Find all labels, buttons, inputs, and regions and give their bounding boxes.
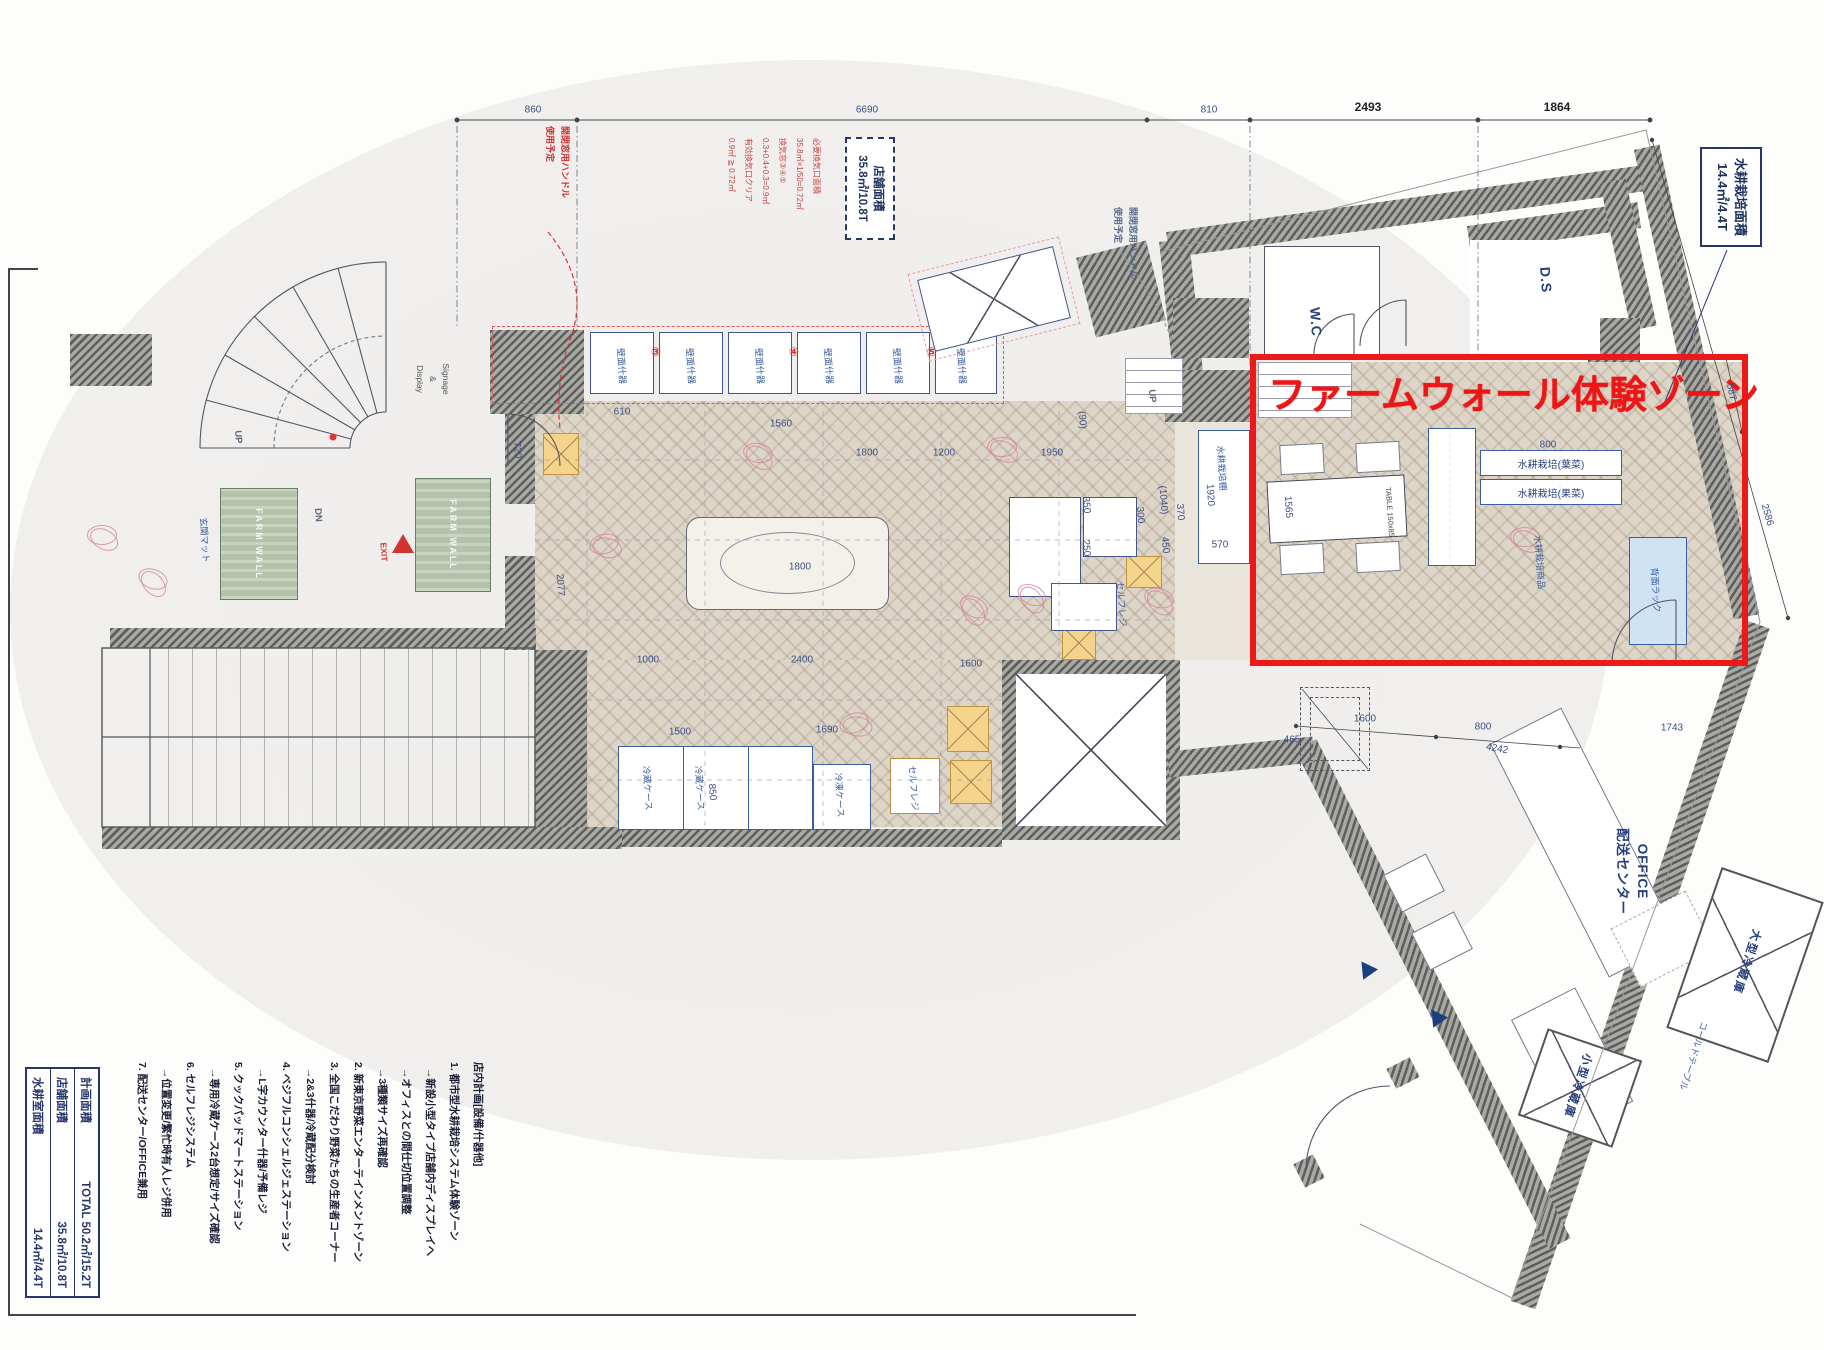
dimension-label: 465 — [1284, 735, 1301, 746]
text-line: 必要換気口面積 — [808, 138, 825, 238]
text-line: 有効換気口クリア — [740, 138, 757, 238]
text-line: →オフィスとの間仕切位置調整 — [394, 1062, 418, 1300]
text-line: 6. セルフレジシステム — [178, 1062, 202, 1300]
text-line: →3種類サイズ再確認 — [370, 1062, 394, 1300]
plan-label: 小型冷蔵庫 — [1560, 1051, 1596, 1120]
text-line: 配送センター — [1612, 808, 1632, 935]
dimension-label: 587 — [1724, 383, 1738, 402]
dimension-label: 810 — [1201, 105, 1218, 116]
hydro-area-line2: 14.4㎡/4.4T — [1713, 163, 1731, 231]
plan-label: 壁面什器 — [614, 348, 629, 385]
hydro-area-box: 水耕栽培面積 14.4㎡/4.4T — [1700, 147, 1762, 247]
dimension-label: 720 — [511, 441, 523, 458]
area-table-value: TOTAL 50.2㎡/15.2T — [79, 1181, 95, 1288]
vent-calc-stamp: 必要換気口面積35.8㎡×1/50=0.72㎡換気窓③④⑤0.3+0.4+0.3… — [721, 138, 825, 238]
text-line: 0.3+0.4+0.3=0.9㎡ — [757, 138, 774, 238]
dimension-label: 1864 — [1544, 100, 1571, 114]
plan-label: TABLE 150x85 — [1384, 487, 1396, 537]
area-table-label: 水耕室面積 — [31, 1077, 47, 1135]
text-line: 2. 新東京野菜エンターテインメントゾーン — [346, 1062, 370, 1300]
plan-label: 背面ラック — [1648, 567, 1664, 613]
area-table-value: 14.4㎡/4.4T — [31, 1228, 47, 1288]
dimension-label: 1950 — [1041, 448, 1063, 459]
dimension-label: 850 — [706, 783, 718, 800]
plan-label: 冷蔵ケース — [692, 765, 708, 810]
plan-label: D.S — [1537, 266, 1555, 293]
text-line: →L字カウンター什器/予備レジ — [250, 1062, 274, 1300]
dimension-label: 570 — [1212, 540, 1229, 551]
dimension-label: 1200 — [933, 448, 955, 459]
plan-label: EXIT — [378, 542, 389, 562]
text-line: 開閉窓用ハンドル — [1125, 207, 1140, 302]
text-line: 開閉窓用ハンドル — [557, 126, 572, 226]
dimension-label: 1920 — [1204, 484, 1217, 507]
dimension-label: 1560 — [770, 419, 792, 430]
plan-label: コールドテーブル — [1677, 1020, 1711, 1092]
text-line: 換気窓③④⑤ — [774, 138, 791, 238]
plan-label: 壁面什器 — [890, 348, 905, 385]
text-line: 店内計画[設備/什器他] — [466, 1062, 490, 1300]
signage-display-label: Signage&Display — [408, 356, 452, 402]
plan-label: セルフレジ — [1114, 581, 1130, 627]
dimension-label: 300 — [1134, 506, 1146, 523]
floor-plan-sheet: FARM WALL FARM WALL 水耕栽培(葉菜) 水耕栽培(果菜) — [0, 0, 1824, 1350]
handle-note-red: 開閉窓用ハンドル使用予定 — [538, 126, 572, 226]
dimension-label: (1040) — [1157, 485, 1170, 515]
dimension-label: 1600 — [960, 659, 982, 670]
plan-label: ⑤ — [927, 345, 937, 359]
office-delivery-label: OFFICE配送センター — [1608, 808, 1652, 935]
dimension-label: 250 — [1080, 539, 1092, 556]
dimension-label: 2586 — [1759, 503, 1776, 527]
area-table-value: 35.8㎡/10.8T — [55, 1222, 71, 1288]
plan-label: セルフレジ — [906, 765, 922, 811]
dimension-label: 2493 — [1355, 100, 1382, 114]
dimension-label: 610 — [614, 407, 631, 418]
plan-label: 冷凍ケース — [832, 772, 848, 817]
dimension-label: 800 — [1475, 722, 1492, 733]
text-line: →新設小型タイプ店舗内ディスプレイへ — [418, 1062, 442, 1300]
store-area-line1: 店舗面積 — [870, 166, 886, 212]
plan-label: DN — [312, 508, 324, 522]
area-table-row: 水耕室面積14.4㎡/4.4T — [27, 1069, 51, 1296]
plan-label: 壁面什器 — [821, 348, 836, 385]
text-line: 5. クックパッドマートステーション — [226, 1062, 250, 1300]
text-line: 4. ベジフルコンシェルジェステーション — [274, 1062, 298, 1300]
dimension-label: 350 — [1080, 496, 1092, 513]
text-line: OFFICE — [1632, 808, 1652, 935]
text-line: 3. 全国こだわり野菜たちの生産者コーナー — [322, 1062, 346, 1300]
dimension-label: 860 — [525, 105, 542, 116]
dimension-label: 800 — [1540, 440, 1557, 451]
dimension-label: 2077 — [554, 574, 567, 597]
text-line: 7. 配送センター/OFFICE兼用 — [130, 1062, 154, 1300]
dimension-label: 370 — [1174, 503, 1186, 520]
text-line: 使用予定 — [1110, 207, 1125, 302]
text-line: Signage — [439, 356, 452, 402]
plan-label: 壁面什器 — [752, 348, 767, 385]
dimension-label: 1500 — [669, 727, 691, 738]
plan-label: 大型冷蔵庫 — [1729, 927, 1765, 996]
plan-label: W.C — [1307, 307, 1325, 337]
plan-label: ④ — [789, 345, 799, 359]
plan-label: 壁面什器 — [954, 348, 969, 385]
plan-label: 水耕栽培商品 — [1532, 535, 1549, 590]
area-table-row: 店舗面積35.8㎡/10.8T — [51, 1069, 75, 1296]
dimension-label: 1800 — [856, 448, 878, 459]
text-line: 使用予定 — [542, 126, 557, 226]
plan-label: 冷蔵ケース — [640, 765, 656, 810]
text-line: & — [426, 356, 439, 402]
plan-label: 玄関マット — [197, 517, 213, 563]
dimension-label: 450 — [1159, 536, 1171, 553]
text-line: 0.9㎡ ≧ 0.72㎡ — [723, 138, 740, 238]
dimension-label: 6690 — [856, 105, 878, 116]
dimension-label: 1565 — [1282, 496, 1295, 519]
plan-notes-list: 店内計画[設備/什器他]1. 都市型水耕栽培システム体験ゾーン →新設小型タイプ… — [128, 1062, 490, 1300]
dimension-label: 1690 — [816, 725, 838, 736]
text-line: →2&3什器/冷蔵配分検討 — [298, 1062, 322, 1300]
text-line: Display — [413, 356, 426, 402]
area-table-label: 店舗面積 — [55, 1077, 71, 1123]
text-line: →位置変更/繁忙時有人レジ併用 — [154, 1062, 178, 1300]
plan-label: UP — [1146, 389, 1158, 403]
hydro-area-line1: 水耕栽培面積 — [1731, 158, 1749, 236]
text-line: 1. 都市型水耕栽培システム体験ゾーン — [442, 1062, 466, 1300]
plan-label: 水耕栽培棚 — [1214, 445, 1230, 491]
dimension-label: 1600 — [1354, 714, 1376, 725]
store-area-box: 店舗面積 35.8㎡/10.8T — [845, 137, 895, 240]
dimension-label: 2400 — [791, 655, 813, 666]
plan-label: 壁面什器 — [683, 348, 698, 385]
dimension-label: 4242 — [1485, 742, 1509, 757]
area-table-row: 計画面積TOTAL 50.2㎡/15.2T — [75, 1069, 98, 1296]
dimension-label: (90) — [1076, 411, 1088, 430]
plan-label: UP — [232, 430, 244, 444]
text-line: 35.8㎡×1/50=0.72㎡ — [791, 138, 808, 238]
dimension-label: 1800 — [789, 562, 811, 573]
plan-label: ③ — [651, 345, 661, 359]
dimension-label: 1743 — [1661, 723, 1683, 734]
store-area-line2: 35.8㎡/10.8T — [854, 155, 870, 221]
text-line: →専用冷蔵ケース2台想定/サイズ確認 — [202, 1062, 226, 1300]
area-summary-table: 計画面積TOTAL 50.2㎡/15.2T店舗面積35.8㎡/10.8T水耕室面… — [25, 1067, 100, 1298]
area-table-label: 計画面積 — [79, 1077, 95, 1123]
dimension-label: 1000 — [637, 655, 659, 666]
handle-note-gray: 開閉窓用ハンドル使用予定 — [1106, 207, 1140, 302]
